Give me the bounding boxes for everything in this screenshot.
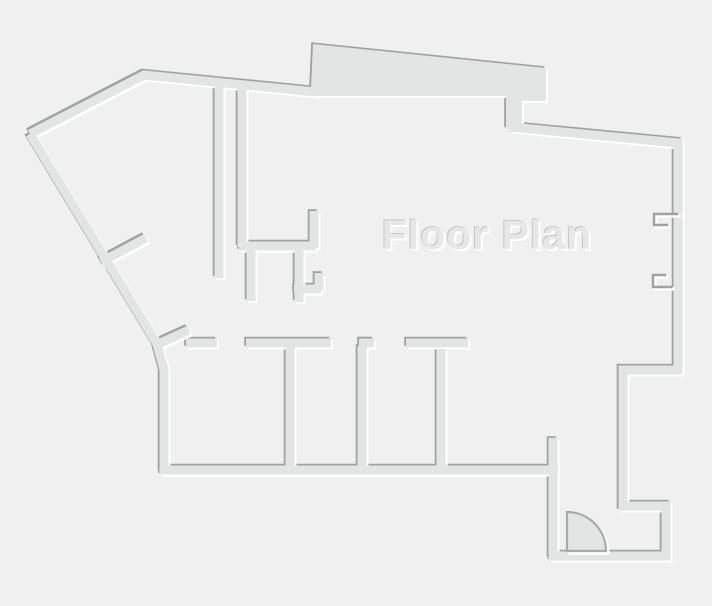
floor-plan-svg: Floor Plan Floor Plan Floor Plan bbox=[0, 0, 712, 606]
floor-plan-title: Floor Plan bbox=[382, 212, 592, 258]
title-group: Floor Plan Floor Plan Floor Plan bbox=[381, 211, 594, 260]
door-swing bbox=[567, 512, 608, 553]
floor-plan-page: Floor Plan Floor Plan Floor Plan bbox=[0, 0, 712, 606]
walls-fill bbox=[30, 44, 678, 558]
walls-layer bbox=[28, 42, 680, 560]
door-swing-arc bbox=[567, 512, 606, 551]
